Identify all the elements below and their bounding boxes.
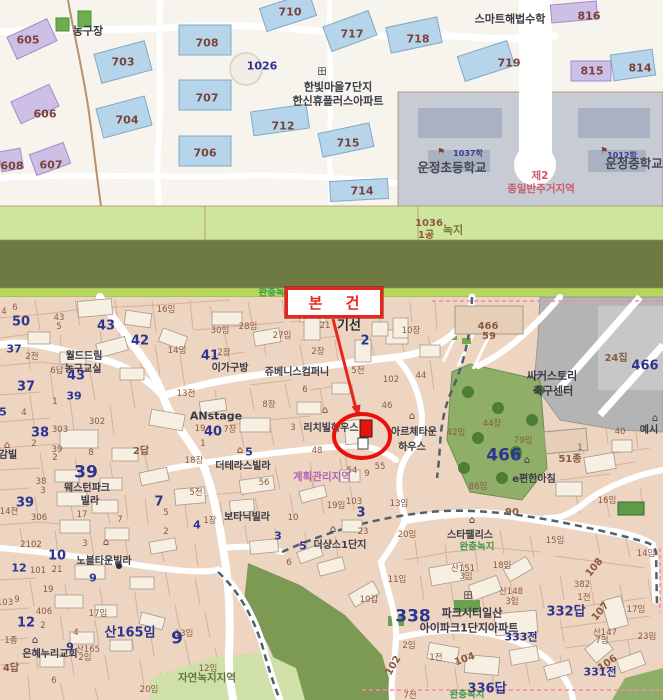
map-label: 1 (200, 440, 205, 449)
map-label: 466 (631, 360, 658, 373)
map-label: 107 (590, 601, 611, 623)
map-label: 2 (40, 622, 45, 631)
map-label: 이가구방 (212, 364, 249, 374)
map-label: 운정초등학교 (417, 162, 486, 175)
house-icon: ⌂ (103, 538, 109, 548)
map-label: 종일반주거지역 (507, 184, 575, 195)
map-label: 37 (17, 381, 35, 394)
map-label: 108 (584, 557, 605, 579)
house-icon: ⌂ (237, 446, 243, 456)
map-label: 23임 (638, 633, 657, 642)
map-label: 306 (31, 514, 47, 523)
house-icon: ⌂ (524, 456, 530, 466)
map-label: 703 (112, 57, 135, 68)
map-label: 814 (629, 63, 652, 74)
map-label: 1전 (429, 654, 442, 663)
map-label: 816 (578, 11, 601, 22)
church-icon: ⌂ (32, 636, 38, 646)
apartment-complex-icon: 田 (317, 69, 326, 78)
map-label: e편한아침 (512, 475, 556, 485)
map-label: 16임 (157, 306, 176, 315)
map-label: 3 (290, 424, 295, 433)
map-label: 산148 (499, 588, 523, 597)
map-label: 1 (52, 398, 57, 407)
map-label: 2답 (133, 447, 149, 457)
map-label: 21 (52, 566, 63, 575)
map-label: 14전 (0, 508, 18, 517)
map-label: 1026 (247, 61, 278, 72)
map-label: 1037학 (453, 150, 483, 158)
map-label: 쥬베니스컴퍼니 (265, 368, 329, 378)
map-label: 712 (272, 121, 295, 132)
map-label: 2 (31, 440, 36, 449)
map-label: 자연녹지지역 (178, 673, 236, 684)
map-label: 파크시티일산 (442, 608, 503, 619)
map-label: 18장 (185, 457, 204, 466)
map-label: 608 (1, 161, 24, 172)
house-icon: ⌂ (652, 414, 658, 424)
map-label: 44장 (483, 420, 502, 429)
map-label: 5 (245, 447, 253, 458)
map-label: 9 (364, 470, 369, 479)
map-label: 605 (17, 35, 40, 46)
map-label: 4 (73, 629, 78, 638)
map-label: 59 (482, 332, 496, 342)
map-label: 19임 (327, 502, 346, 511)
map-label: 더테라스빌라 (215, 462, 270, 472)
map-label: 7전 (403, 692, 416, 700)
map-label: 13전 (177, 390, 196, 399)
map-label: 39 (74, 465, 98, 482)
map-label: 12 (17, 617, 35, 630)
map-label: 하우스 (398, 443, 426, 453)
map-label: 606 (34, 109, 57, 120)
map-label: 103 (0, 599, 13, 608)
map-label: 7임 (595, 637, 608, 646)
map-label: 2102 (20, 541, 42, 550)
house-icon: ⌂ (409, 412, 415, 422)
house-icon: ⌂ (469, 516, 475, 526)
map-label: 42임 (447, 429, 466, 438)
map-label: 5 (56, 323, 61, 332)
map-label: 79임 (514, 437, 533, 446)
map-label: 월드드림 (66, 352, 103, 362)
map-label: 2장 (217, 349, 230, 358)
map-label: 은혜누리교회 (22, 650, 77, 660)
map-label: 스마트해법수학 (475, 14, 546, 25)
map-label: 9 (171, 631, 183, 648)
map-label: 더샹스1단지 (314, 541, 367, 551)
map-label: 718 (407, 34, 430, 45)
map-label: 23 (358, 528, 369, 537)
map-label: 104 (453, 652, 476, 669)
map-label: 농구장 (73, 26, 103, 37)
map-label: 완충녹지 (460, 542, 495, 552)
map-label: 예시 (640, 426, 658, 436)
map-label: 42 (131, 335, 149, 348)
map-label: 406 (36, 608, 52, 617)
map-label: 708 (196, 38, 219, 49)
map-label: 43 (97, 320, 115, 333)
map-label: 5 (0, 407, 7, 418)
map-label: 331전 (583, 667, 616, 678)
map-label: 제2 (532, 171, 549, 182)
map-label: 9 (14, 596, 19, 605)
map-label: 웨스턴파크 (64, 484, 110, 494)
map-label: 아르체타운 (391, 428, 437, 438)
map-label: 20임 (140, 686, 159, 695)
map-label: 102 (383, 376, 399, 385)
map-label: 303 (52, 426, 68, 435)
map-label: 2전 (25, 353, 38, 362)
map-label: 20임 (398, 531, 417, 540)
school-flag-icon: ⚑ (437, 149, 445, 158)
map-label: 한빛마을7단지 (304, 82, 372, 93)
map-label: 40 (615, 428, 626, 437)
map-label: 1전 (577, 594, 590, 603)
map-label: 계획관리지역 (293, 472, 351, 483)
map-label: 715 (337, 138, 360, 149)
map-label: 1 (577, 444, 582, 453)
map-label: 8 (88, 449, 93, 458)
map-label: 102 (384, 654, 403, 677)
map-label: 706 (194, 148, 217, 159)
map-label: 333전 (504, 632, 537, 643)
map-label: 55 (375, 463, 386, 472)
map-label: 719 (498, 58, 521, 69)
map-label: 5전 (189, 489, 202, 498)
map-label: 717 (341, 29, 364, 40)
map-label: 17 (77, 511, 88, 520)
map-label: 1공 (418, 231, 434, 241)
map-label: 2임 (78, 654, 91, 663)
map-label: 3 (82, 540, 87, 549)
subject-annotation-box: 본 건 (285, 287, 383, 318)
map-label: 41 (201, 350, 219, 363)
map-label: 21 (320, 322, 331, 331)
map-label: 10 (48, 550, 66, 563)
map-label: 38 (31, 427, 49, 440)
map-label: 707 (196, 93, 219, 104)
map-label: 714 (351, 186, 374, 197)
map-label: 16임 (598, 497, 617, 506)
house-icon: ⌂ (330, 525, 336, 535)
map-label: 86임 (469, 483, 488, 492)
map-label: 13임 (390, 500, 409, 509)
map-label: 5 (299, 541, 307, 552)
map-label: 3임 (459, 573, 472, 582)
map-label: ANstage (190, 411, 242, 422)
map-label: 2 (52, 454, 57, 463)
map-label: 17임 (627, 606, 646, 615)
map-label: 7장 (223, 426, 236, 435)
map-label: 5 (163, 509, 168, 518)
map-label: 3임 (505, 598, 518, 607)
map-label: 6 (51, 677, 56, 686)
map-label: 18임 (493, 562, 512, 571)
map-label: 1036 (415, 219, 443, 229)
map-label: 6 (286, 559, 291, 568)
map-label: 607 (40, 160, 63, 171)
map-label: 4 (1, 308, 6, 317)
dot-icon: ● (116, 562, 123, 570)
map-label: 한신휴플러스아파트 (292, 96, 383, 107)
map-label: 2장 (311, 348, 324, 357)
map-label: 815 (581, 66, 604, 77)
map-label: 1012학 (607, 152, 637, 160)
map-label: 46 (382, 402, 393, 411)
map-label: 빌라 (81, 497, 99, 507)
map-label: 4 (21, 409, 26, 418)
map-label: 3 (356, 507, 365, 520)
map-label: 19 (43, 586, 54, 595)
map-label: 466 (486, 448, 522, 465)
map-label: 6 (12, 304, 17, 313)
map-label: 10 (288, 514, 299, 523)
map-label: 51종 (558, 455, 581, 465)
map-label: 704 (116, 115, 139, 126)
map-label: 9 (89, 573, 97, 584)
house-icon: ⌂ (322, 406, 328, 416)
map-label: 10갑 (360, 596, 379, 605)
map-label: 2임 (402, 642, 415, 651)
map-label: 17임 (89, 610, 108, 619)
map-label: 3 (40, 487, 45, 496)
map-label: 8장 (262, 401, 275, 410)
map-label: 43 (67, 370, 85, 383)
map-label: 2 (360, 335, 369, 348)
map-label: 40 (204, 426, 222, 439)
map-label: 302 (89, 418, 105, 427)
map-label: 44 (416, 372, 427, 381)
map-label: 382 (574, 581, 590, 590)
map-label: 녹지 (443, 225, 463, 236)
map-label: 10장 (402, 327, 421, 336)
map-label: 1장 (203, 517, 216, 526)
map-label: 6답 (50, 367, 63, 376)
map-label: 싸커스토리 (527, 371, 578, 382)
map-label: 14임 (637, 550, 656, 559)
map-label: 37 (6, 344, 21, 355)
map-label: 50 (12, 316, 30, 329)
map-label: 4답 (3, 664, 19, 674)
map-label: 101 (30, 567, 46, 576)
map-label: 7 (117, 516, 122, 525)
map-label: 11임 (388, 576, 407, 585)
map-label: 산165임 (104, 627, 155, 640)
map-label: 27임 (273, 332, 292, 341)
map-label: 90 (505, 508, 519, 518)
map-label: 48 (312, 447, 323, 456)
map-label: 7 (154, 496, 163, 509)
map-label: 12 (11, 563, 26, 574)
map-label: 15임 (546, 537, 565, 546)
map-label: 28임 (239, 323, 258, 332)
map-label: 보타닉빌라 (224, 513, 270, 523)
map-label: 1종 (4, 637, 17, 646)
map-label: 기선 (337, 320, 361, 333)
map-label: 완충녹지 (450, 690, 485, 700)
map-label: 56 (259, 479, 270, 488)
map-label: 3 (274, 531, 282, 542)
map-label: 4 (193, 520, 201, 531)
map-label: 리치빌하우스 (303, 424, 358, 434)
map-label: 30임 (211, 327, 230, 336)
map-label: 39 (66, 391, 81, 402)
map-label: 스타팰리스 (447, 531, 493, 541)
map-label: 2 (163, 528, 168, 537)
map-label: 감빌 (0, 451, 17, 461)
subject-label: 본 건 (300, 292, 369, 313)
map-label: 축구센터 (533, 386, 573, 397)
map-labels-layer: 6056066076087037047067077087107127147157… (0, 0, 663, 700)
map-label: 24집 (604, 354, 627, 364)
map-label: 5전 (351, 367, 364, 376)
cadastral-map: 6056066076087037047067077087107127147157… (0, 0, 663, 700)
map-label: 14임 (168, 347, 187, 356)
map-label: 710 (279, 7, 302, 18)
map-label: 6 (302, 386, 307, 395)
apartment-complex-icon: 田 (463, 593, 472, 602)
map-label: 노블타운빌라 (76, 557, 131, 567)
map-label: 332답 (546, 606, 585, 619)
